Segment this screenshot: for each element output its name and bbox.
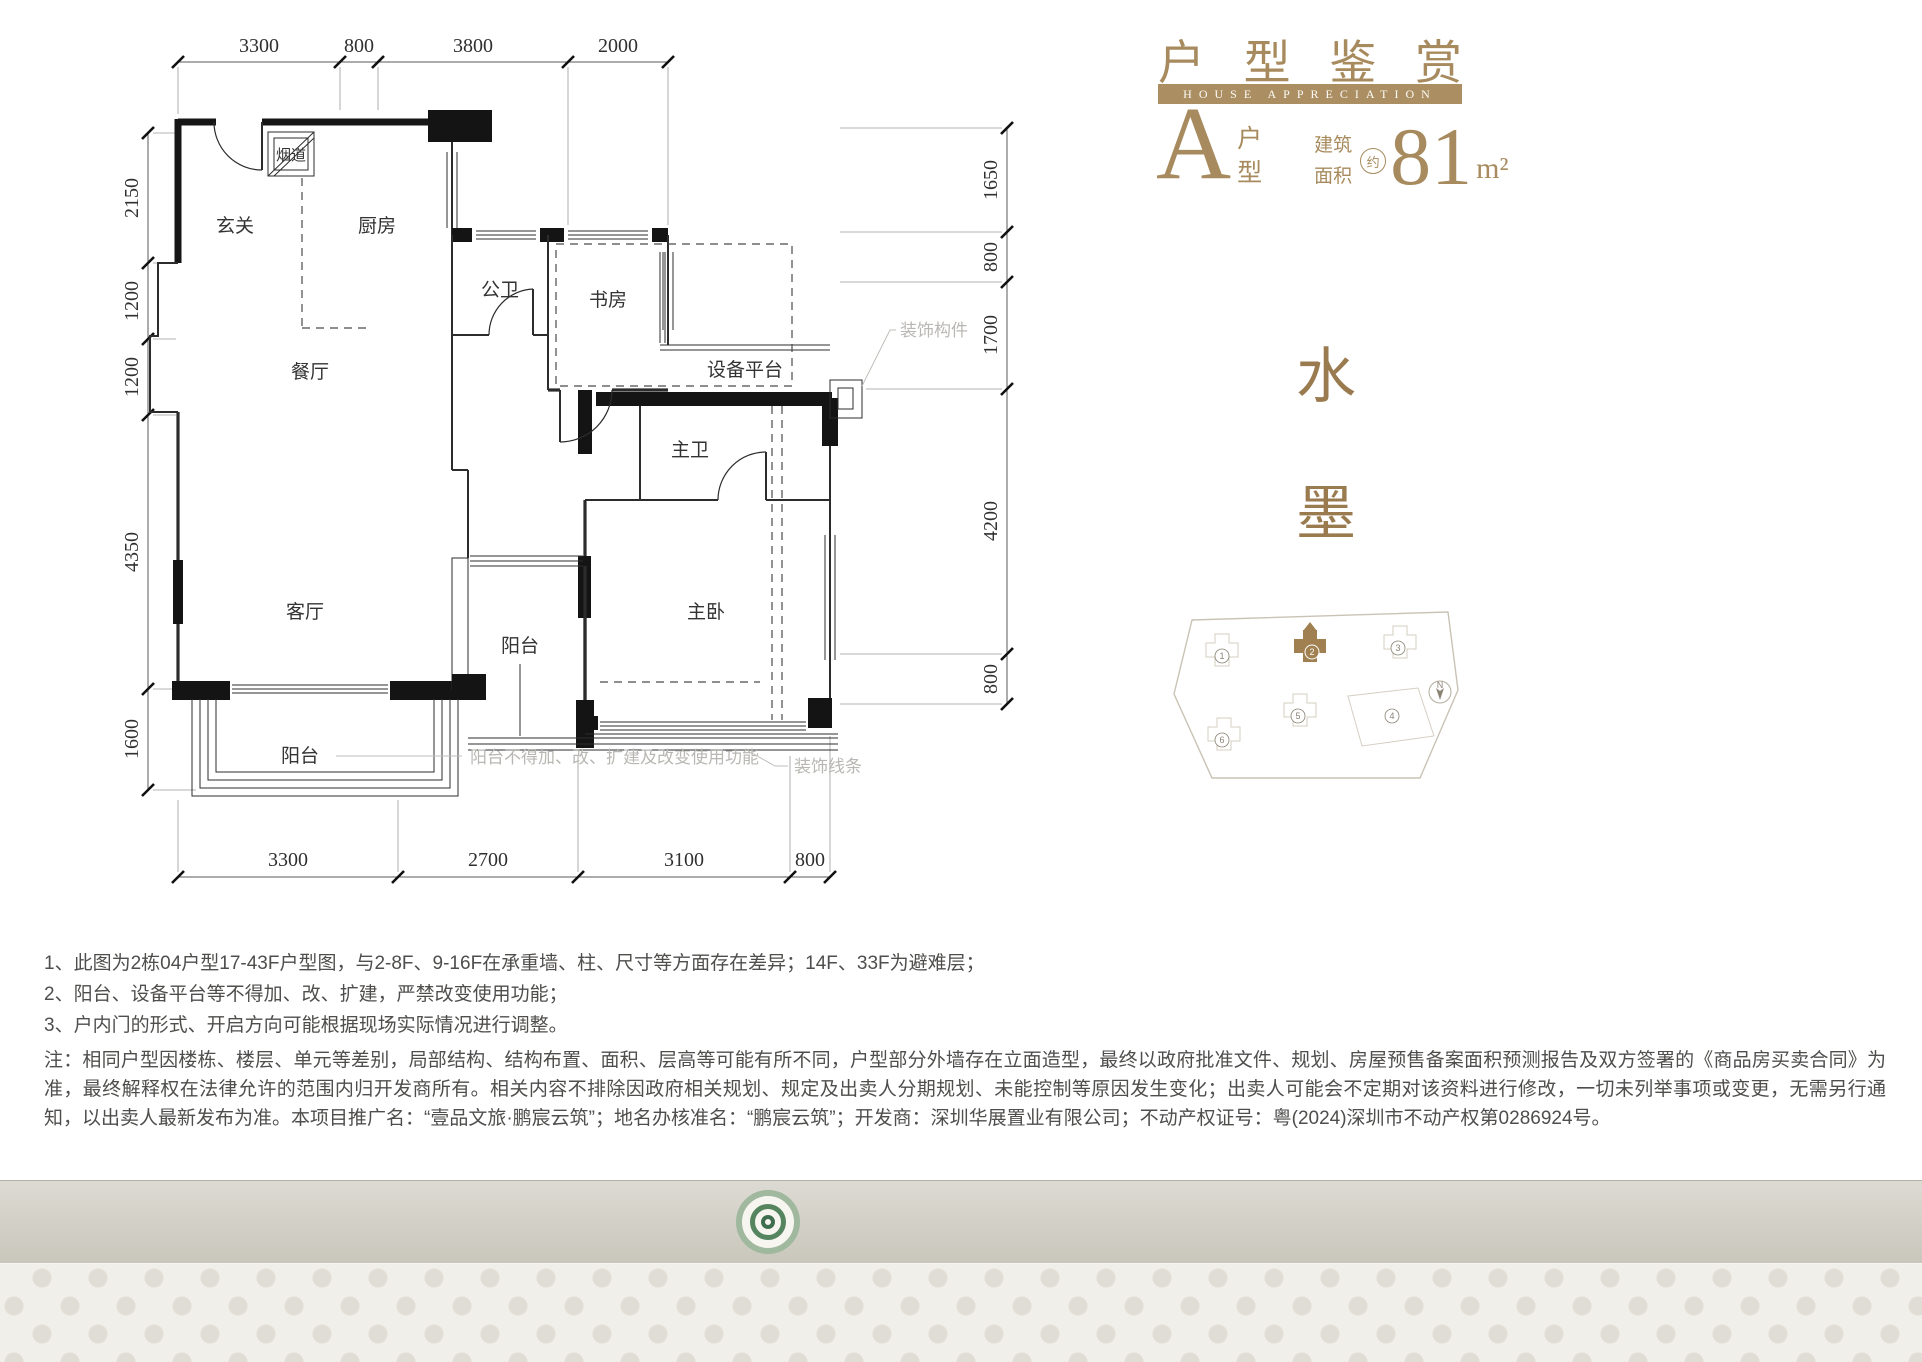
page-title: 户 型 鉴 赏 — [1158, 24, 1462, 93]
notes-list: 1、此图为2栋04户型17-43F户型图，与2-8F、9-16F在承重墙、柱、尺… — [44, 948, 985, 1041]
dim-left-3: 1200 — [121, 357, 143, 397]
bottom-zone: CSCEC 中建壹品 C S C E C Y I P I N 中 建 三 局 之… — [0, 1180, 1922, 1362]
area-value: 81 — [1390, 122, 1472, 192]
room-label-dining: 餐厅 — [291, 361, 329, 383]
site-num-6: 6 — [1219, 735, 1224, 745]
note-line-1: 1、此图为2栋04户型17-43F户型图，与2-8F、9-16F在承重墙、柱、尺… — [44, 948, 985, 979]
site-num-5: 5 — [1295, 711, 1300, 721]
dim-bottom-4: 800 — [795, 849, 825, 871]
room-label-equipment-platform: 设备平台 — [707, 359, 783, 381]
room-label-living: 客厅 — [286, 601, 324, 623]
calligraphy-motto: 水 墨 — [1296, 328, 1356, 552]
dim-right-2: 800 — [980, 242, 1002, 272]
area-label-line2: 面积 — [1314, 161, 1352, 188]
note-line-3: 3、户内门的形式、开启方向可能根据现场实际情况进行调整。 — [44, 1010, 985, 1041]
dim-left-1: 2150 — [121, 178, 143, 218]
site-num-3: 3 — [1395, 643, 1400, 653]
room-label-flue: 烟道 — [276, 147, 306, 164]
title-char-3: 鉴 — [1329, 24, 1376, 93]
brochure-page: 3300 800 3800 2000 2150 1200 1200 4350 1… — [0, 0, 1922, 1362]
dim-top-3: 3800 — [453, 35, 493, 57]
decor-member-label: 装饰构件 — [900, 321, 968, 340]
unit-info: A 户 型 建筑 面积 约 81 m² — [1156, 96, 1508, 192]
calligraphy-char-top: 水 — [1296, 328, 1356, 415]
title-char-1: 户 — [1158, 24, 1205, 93]
area-approx-badge: 约 — [1360, 148, 1386, 174]
dim-bottom-2: 2700 — [468, 849, 508, 871]
decorative-band — [0, 1180, 1922, 1264]
area-label: 建筑 面积 — [1314, 130, 1352, 188]
room-label-entry: 玄关 — [216, 215, 254, 237]
floor-plan-drawing: 3300 800 3800 2000 2150 1200 1200 4350 1… — [0, 0, 1922, 1362]
dimension-top: 3300 800 3800 2000 — [172, 35, 674, 225]
dim-top-2: 800 — [344, 35, 374, 57]
site-num-2: 2 — [1309, 647, 1314, 657]
site-plan: 1 2 3 4 5 6 N — [1174, 612, 1458, 778]
dim-left-2: 1200 — [121, 281, 143, 321]
area-info: 建筑 面积 约 81 m² — [1314, 122, 1508, 192]
area-label-line1: 建筑 — [1314, 130, 1352, 157]
site-num-4: 4 — [1389, 711, 1394, 721]
title-char-4: 赏 — [1415, 24, 1462, 93]
unit-letter: A — [1156, 96, 1231, 192]
site-num-1: 1 — [1219, 651, 1224, 661]
unit-word-bottom: 型 — [1237, 160, 1262, 188]
calligraphy-char-bottom: 墨 — [1296, 465, 1356, 552]
room-label-kitchen: 厨房 — [358, 215, 396, 237]
dim-right-1: 1650 — [980, 160, 1002, 200]
balcony-note: 阳台不得加、改、扩建及改变使用功能 — [470, 747, 759, 767]
dim-top-1: 3300 — [239, 35, 279, 57]
room-label-guest-bath: 公卫 — [481, 280, 519, 301]
dim-right-5: 800 — [980, 664, 1002, 694]
room-label-master-bath: 主卫 — [671, 439, 709, 461]
room-labels: 烟道 玄关 厨房 公卫 餐厅 书房 设备平台 主卫 客厅 阳台 主卧 阳台 — [216, 147, 783, 767]
dim-left-5: 1600 — [121, 719, 143, 759]
unit-word-top: 户 — [1237, 126, 1262, 154]
room-label-study: 书房 — [589, 289, 627, 311]
dim-right-3: 1700 — [980, 315, 1002, 355]
north-arrow-icon: N — [1429, 680, 1451, 703]
unit-word: 户 型 — [1237, 126, 1262, 187]
room-label-balcony-mid: 阳台 — [501, 635, 539, 657]
title-char-2: 型 — [1244, 24, 1291, 93]
decor-line-label: 装饰线条 — [794, 757, 862, 776]
disclaimer-text: 注：相同户型因楼栋、楼层、单元等差别，局部结构、结构布置、面积、层高等可能有所不… — [44, 1046, 1886, 1133]
dim-left-4: 4350 — [121, 532, 143, 572]
area-unit: m² — [1476, 152, 1508, 186]
dim-bottom-3: 3100 — [664, 849, 704, 871]
jade-ornament-icon — [736, 1190, 800, 1254]
dim-right-4: 4200 — [980, 501, 1002, 541]
room-label-balcony-bottom: 阳台 — [281, 745, 319, 767]
room-label-master-bedroom: 主卧 — [687, 601, 725, 623]
north-label: N — [1437, 680, 1444, 690]
note-line-2: 2、阳台、设备平台等不得加、改、扩建，严禁改变使用功能； — [44, 979, 985, 1010]
dimension-right: 1650 800 1700 4200 800 — [840, 122, 1013, 710]
dim-bottom-1: 3300 — [268, 849, 308, 871]
dim-top-4: 2000 — [598, 35, 638, 57]
